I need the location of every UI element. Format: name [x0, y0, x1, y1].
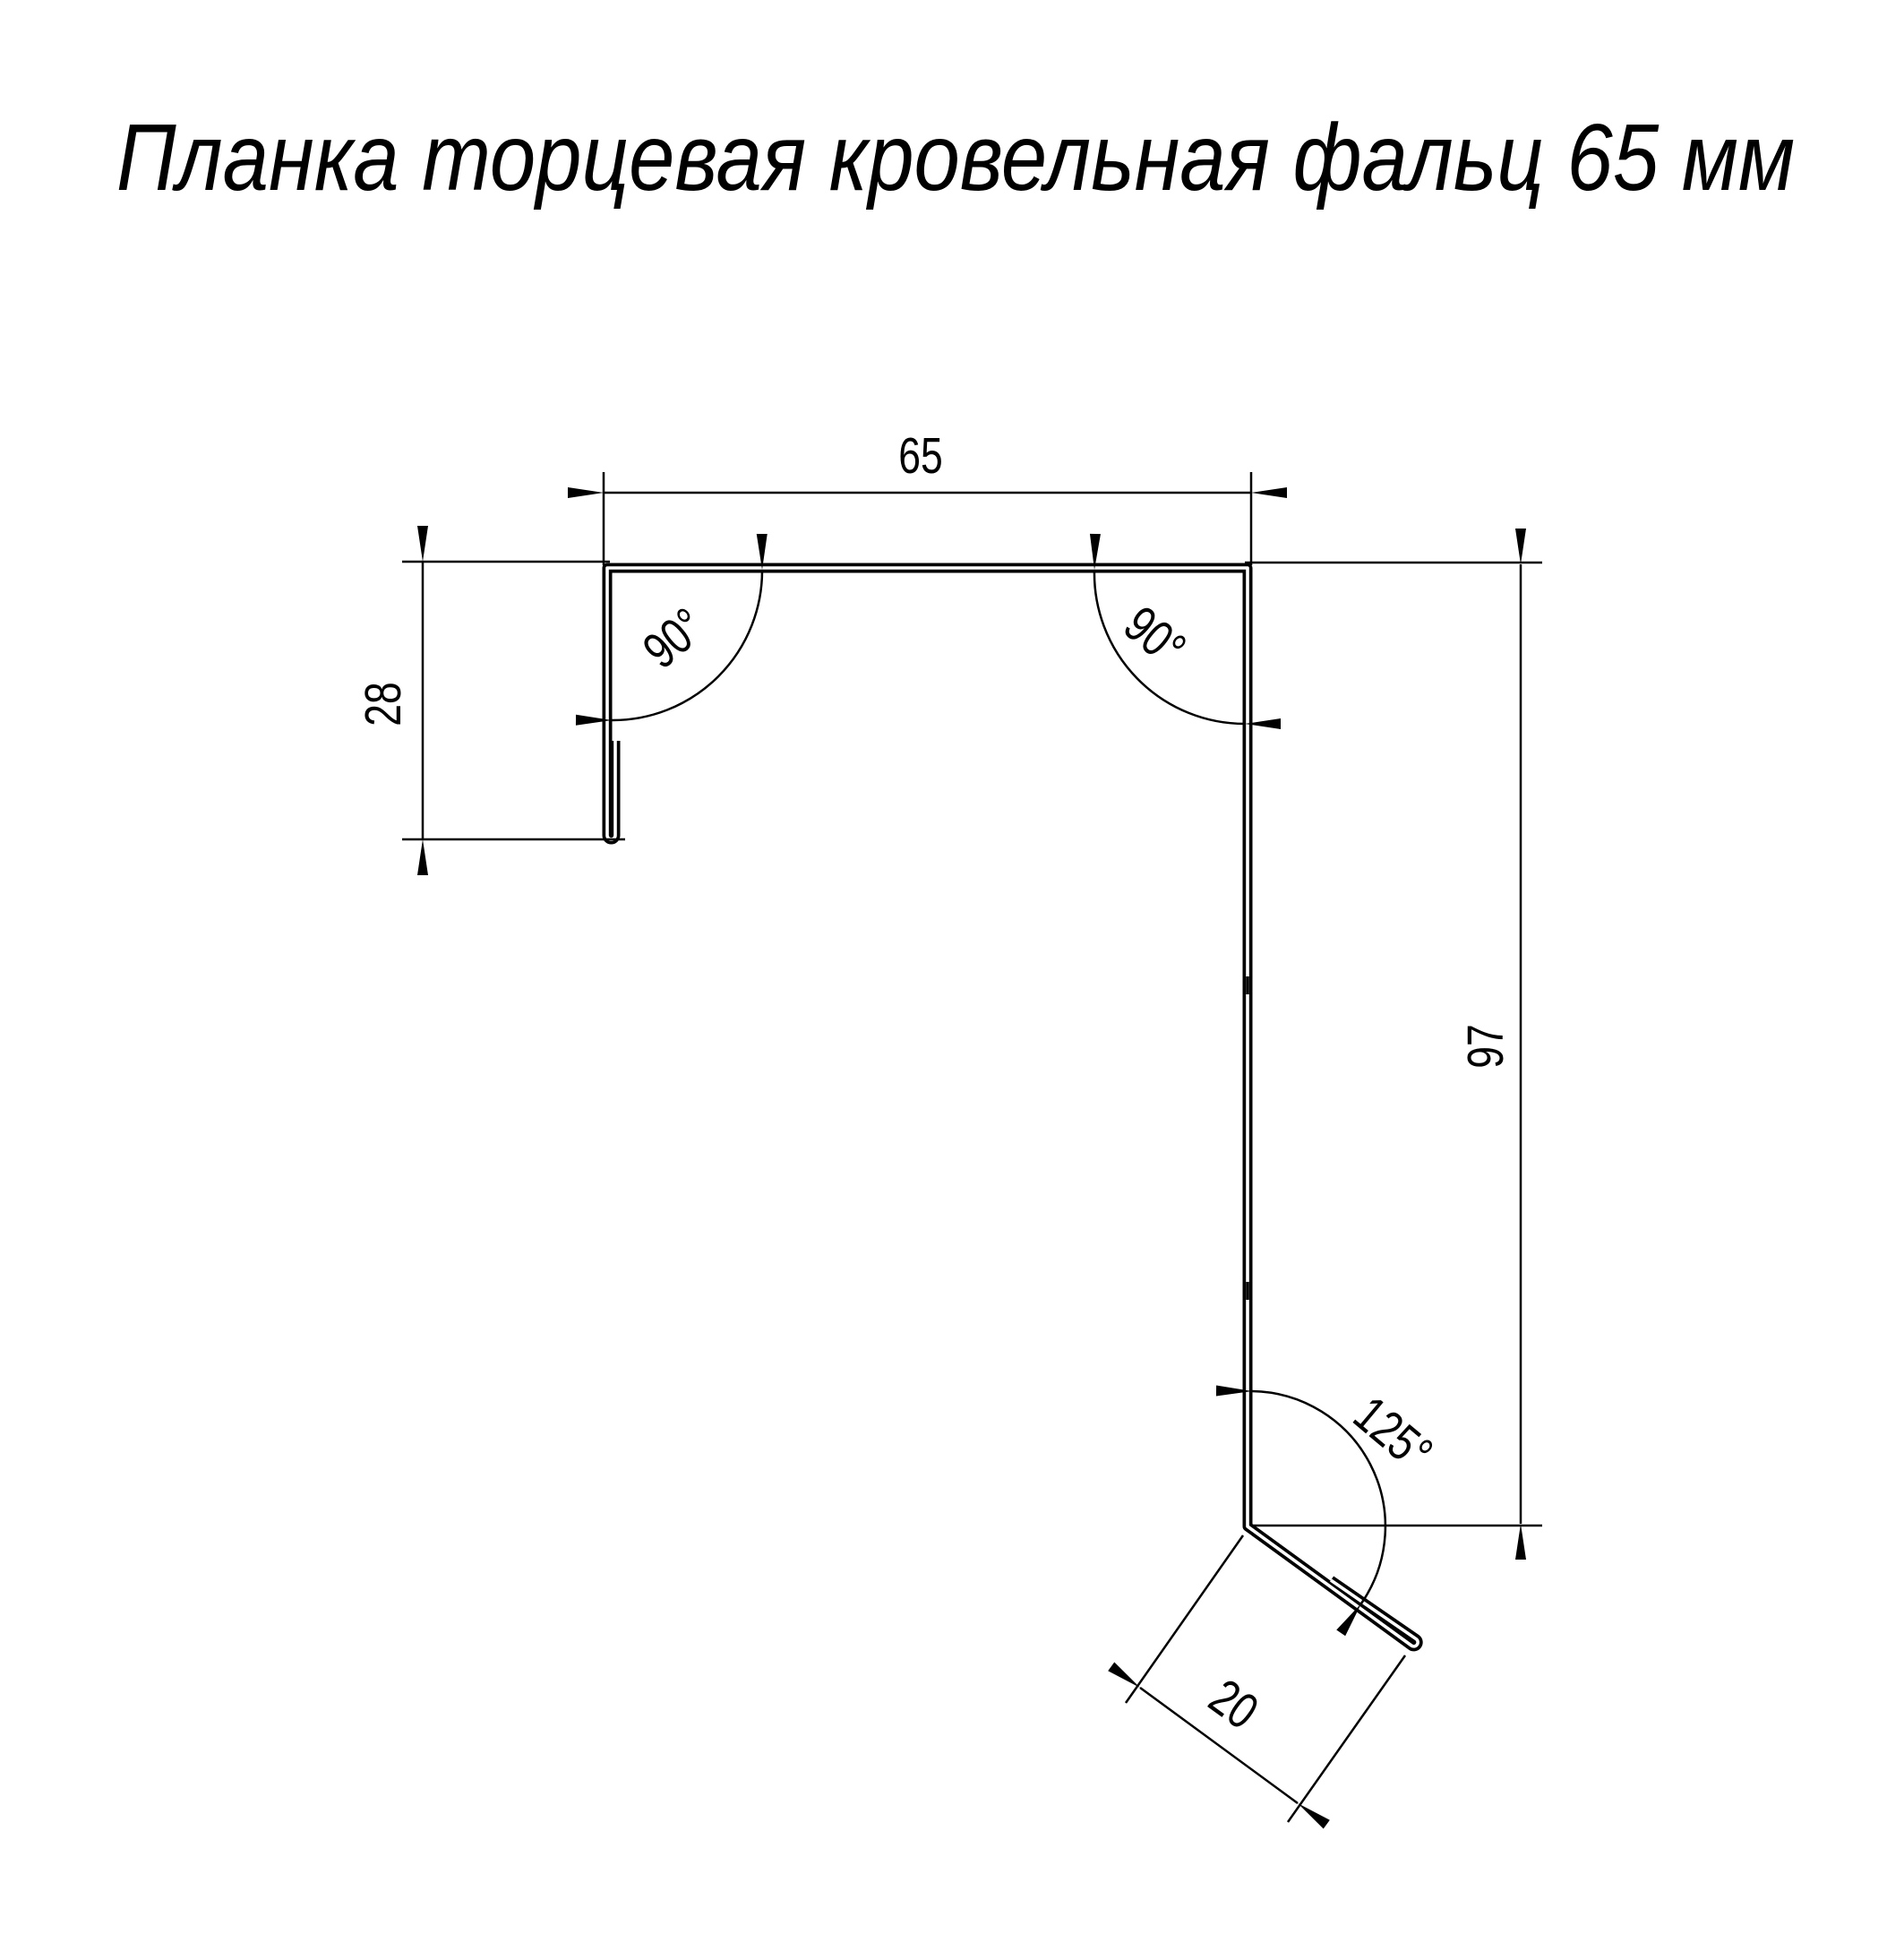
profile-sheet-core — [607, 568, 1418, 1646]
drawing-page: Планка торцевая кровельная фальц 65 мм 6… — [0, 0, 1904, 1960]
drawing-title: Планка торцевая кровельная фальц 65 мм — [116, 105, 1795, 211]
profile-outline — [607, 568, 1418, 1646]
dimension-label-65: 65 — [898, 427, 942, 485]
bend-joint-mark-upper — [1246, 976, 1248, 994]
dimension-label-20: 20 — [1199, 1668, 1268, 1740]
profile-sheet-stroke — [607, 568, 1418, 1646]
dimension-top-width: 65 — [604, 427, 1251, 565]
extension-line — [1288, 1655, 1405, 1822]
dimension-label-28: 28 — [355, 682, 412, 726]
angle-top-left: 90° — [612, 570, 762, 720]
angle-top-right: 90° — [1094, 570, 1245, 724]
angle-label-90-left: 90° — [632, 597, 715, 679]
dimension-label-97: 97 — [1457, 1024, 1514, 1068]
dimension-flange-width: 20 — [1126, 1535, 1405, 1822]
dimension-left-height: 28 — [355, 562, 625, 839]
technical-drawing-canvas: Планка торцевая кровельная фальц 65 мм 6… — [0, 0, 1904, 1960]
angle-bottom: 125° — [1252, 1385, 1443, 1603]
angle-label-125: 125° — [1343, 1385, 1443, 1482]
dimension-right-height: 97 — [1245, 563, 1542, 1526]
bend-joint-mark-lower — [1246, 1282, 1248, 1300]
